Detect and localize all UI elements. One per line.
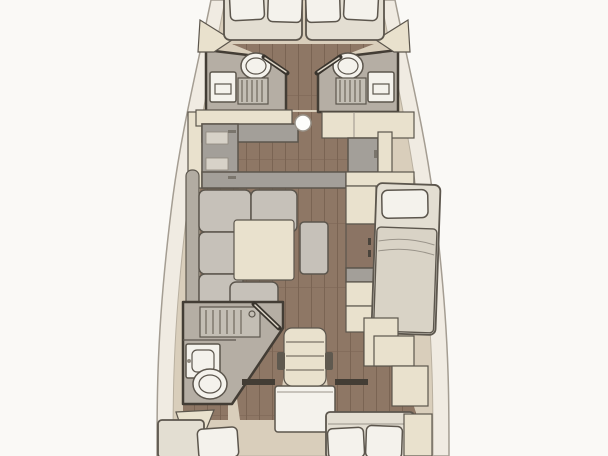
side-shelf	[378, 132, 392, 172]
pillow	[197, 427, 239, 456]
pillow	[343, 0, 378, 21]
fridge-handle	[374, 150, 377, 158]
sink-unit	[210, 72, 236, 102]
starboard-door-lintel	[335, 379, 368, 385]
wood-cabinet	[346, 224, 376, 268]
bench-ottoman	[300, 222, 328, 274]
step-rail	[325, 352, 333, 370]
pillow	[267, 0, 302, 23]
yacht-floorplan	[0, 0, 608, 456]
mast-post	[295, 115, 311, 131]
starboard-aft-cabin	[326, 412, 432, 456]
galley-handle	[228, 176, 236, 179]
faucet	[187, 359, 191, 363]
sink-unit	[368, 72, 394, 102]
galley-panel	[206, 132, 228, 144]
starboard-counter-top	[322, 112, 414, 138]
port-door-lintel	[242, 379, 275, 385]
cabinet-shelf	[346, 268, 376, 282]
cabinet	[346, 282, 376, 306]
galley-counter-return	[202, 172, 346, 188]
cabinet-handle	[368, 250, 371, 257]
pilot-berth	[371, 183, 440, 335]
floorplan-drawing	[0, 0, 608, 456]
pillow	[365, 425, 402, 456]
cabinet-handle	[368, 238, 371, 245]
cabinet	[346, 186, 376, 224]
cabinet	[374, 336, 414, 366]
companionway-steps	[284, 328, 326, 386]
galley-handle	[228, 130, 236, 133]
pillow	[327, 427, 365, 456]
step-rail	[277, 352, 285, 370]
pillow	[305, 0, 340, 23]
pillow	[382, 190, 428, 219]
sofa-backrest	[186, 170, 199, 308]
toilet	[193, 369, 227, 399]
cabinet	[392, 366, 428, 406]
fridge-cabinet	[348, 138, 378, 172]
galley-panel	[206, 158, 228, 170]
foot-locker	[404, 414, 432, 456]
salon-table	[234, 220, 294, 280]
pillow	[229, 0, 264, 21]
